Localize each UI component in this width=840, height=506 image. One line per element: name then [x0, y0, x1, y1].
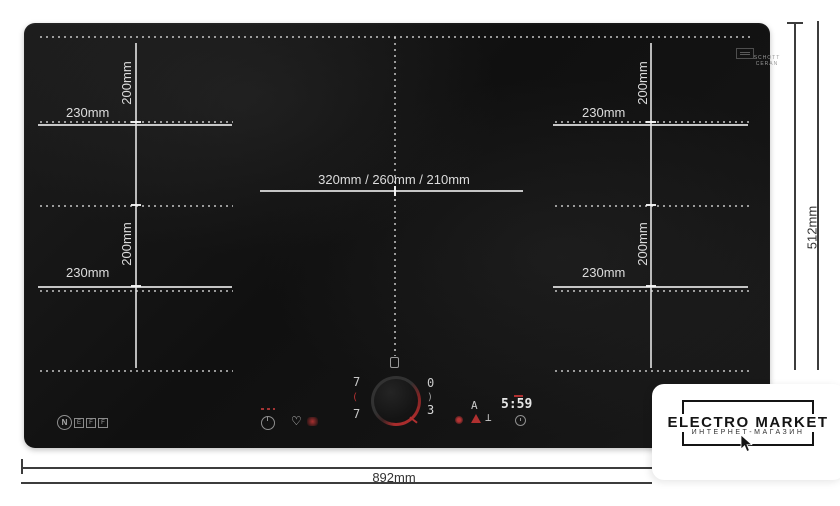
zone-width-label: 230mm	[66, 266, 109, 280]
overall-height-label: 512mm	[805, 198, 820, 258]
zone-dotted-line	[40, 370, 233, 372]
zone-power-display: 7	[353, 407, 360, 421]
power-boost-icon	[471, 414, 481, 423]
timer-clock-icon	[515, 415, 526, 426]
neff-letter: F	[86, 418, 96, 428]
zone-select-bracket: (	[352, 392, 358, 403]
flex-zone-label: 320mm / 260mm / 210mm	[294, 173, 494, 187]
heat-indicator-icon	[455, 416, 463, 424]
zone-select-bracket: )	[427, 392, 433, 403]
vendor-logo-card[interactable]: ELECTRO MARKET ИНТЕРНЕТ-МАГАЗИН	[652, 384, 840, 480]
cross-tick	[646, 285, 656, 287]
overall-width-label: 892mm	[364, 470, 424, 485]
cross-tick	[646, 204, 656, 206]
zone-height-label: 200mm	[120, 53, 134, 113]
width-dimension-line	[21, 482, 652, 484]
schott-ceran-label: SCHOTT CERAN	[753, 56, 781, 67]
pause-indicator-icon	[261, 408, 275, 410]
logo-frame-top	[682, 400, 814, 414]
cross-tick	[646, 121, 656, 123]
cross-tick	[394, 186, 396, 196]
cross-tick	[131, 121, 141, 123]
height-dimension-line	[817, 21, 819, 370]
zone-power-display: 0	[427, 376, 434, 390]
zone-width-label: 230mm	[582, 266, 625, 280]
width-extension-line	[21, 467, 652, 469]
pot-detection-icon: ⊥	[485, 411, 492, 424]
zone-bridge-icon	[390, 357, 399, 368]
center-axis-dotted-line	[394, 37, 396, 356]
zone-dotted-line	[555, 290, 750, 292]
mouse-cursor-icon	[738, 434, 754, 454]
schott-line2: CERAN	[756, 61, 779, 67]
neff-letter: N	[57, 415, 72, 430]
zone-width-label: 230mm	[66, 106, 109, 120]
wipe-protection-icon	[307, 417, 318, 426]
product-image: SCHOTT CERAN 230mm 230mm 230mm 230mm 200…	[0, 0, 840, 506]
height-top-cap	[787, 22, 803, 24]
timer-active-icon	[514, 395, 523, 397]
zone-height-label: 200mm	[120, 214, 134, 274]
auto-indicator: A	[471, 399, 478, 412]
zone-height-label: 200mm	[636, 53, 650, 113]
height-extension-line	[794, 23, 796, 370]
neff-logo: N E F F	[57, 415, 108, 430]
cross-tick	[131, 285, 141, 287]
zone-height-label: 200mm	[636, 214, 650, 274]
timer-display: 5:59	[501, 397, 532, 412]
zone-dotted-line	[555, 370, 750, 372]
neff-letter: E	[74, 418, 84, 428]
power-icon	[261, 416, 275, 430]
zone-power-display: 3	[427, 403, 434, 417]
flex-induction-mark-icon	[736, 48, 754, 59]
neff-letter: F	[98, 418, 108, 428]
flex-zone-width-line	[260, 190, 523, 192]
cross-tick	[131, 204, 141, 206]
favorite-heart-icon: ♡	[291, 414, 302, 428]
zone-width-label: 230mm	[582, 106, 625, 120]
zone-power-display: 7	[353, 375, 360, 389]
